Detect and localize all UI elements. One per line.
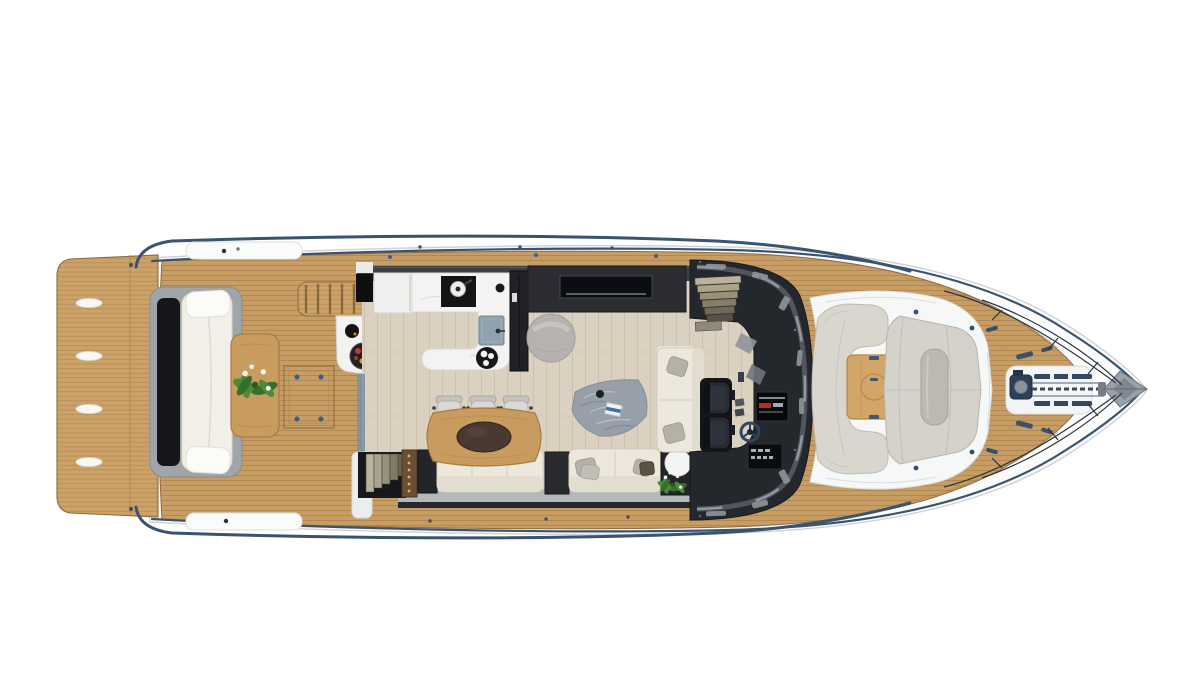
side-table	[545, 452, 569, 494]
yacht-deck-plan	[0, 0, 1200, 692]
table-centerpiece	[457, 422, 511, 452]
bolster-pillow	[921, 349, 948, 425]
door-frame	[356, 274, 373, 302]
bow-sunpad	[884, 316, 981, 464]
salon-bottom-wall	[398, 502, 708, 508]
camera-item	[596, 390, 604, 398]
bean-bag	[527, 314, 575, 362]
aft-deck-table	[231, 334, 279, 437]
boarding-gate-starboard	[186, 513, 302, 530]
pillow	[580, 464, 600, 480]
ice-bucket	[345, 324, 359, 338]
throttle-lever	[735, 398, 745, 406]
swim-platform	[57, 255, 158, 517]
helm-seat	[704, 417, 730, 449]
throttle-lever	[735, 408, 745, 416]
door-frame-top	[356, 262, 373, 273]
helm-seat	[704, 382, 730, 414]
sliding-door-glass	[357, 374, 365, 454]
galley-fridge	[510, 271, 528, 371]
helm-seats	[700, 378, 735, 452]
boarding-gate-port	[186, 242, 302, 259]
side-sofa	[657, 346, 704, 452]
dining-table	[427, 408, 541, 466]
serving-plate	[476, 347, 498, 369]
galley-cabinet	[374, 273, 413, 313]
tv-cabinet	[528, 266, 686, 312]
transom-seat	[150, 287, 242, 477]
engine-hatch	[284, 366, 334, 428]
bow-cockpit	[810, 291, 992, 489]
pillow	[639, 461, 654, 475]
